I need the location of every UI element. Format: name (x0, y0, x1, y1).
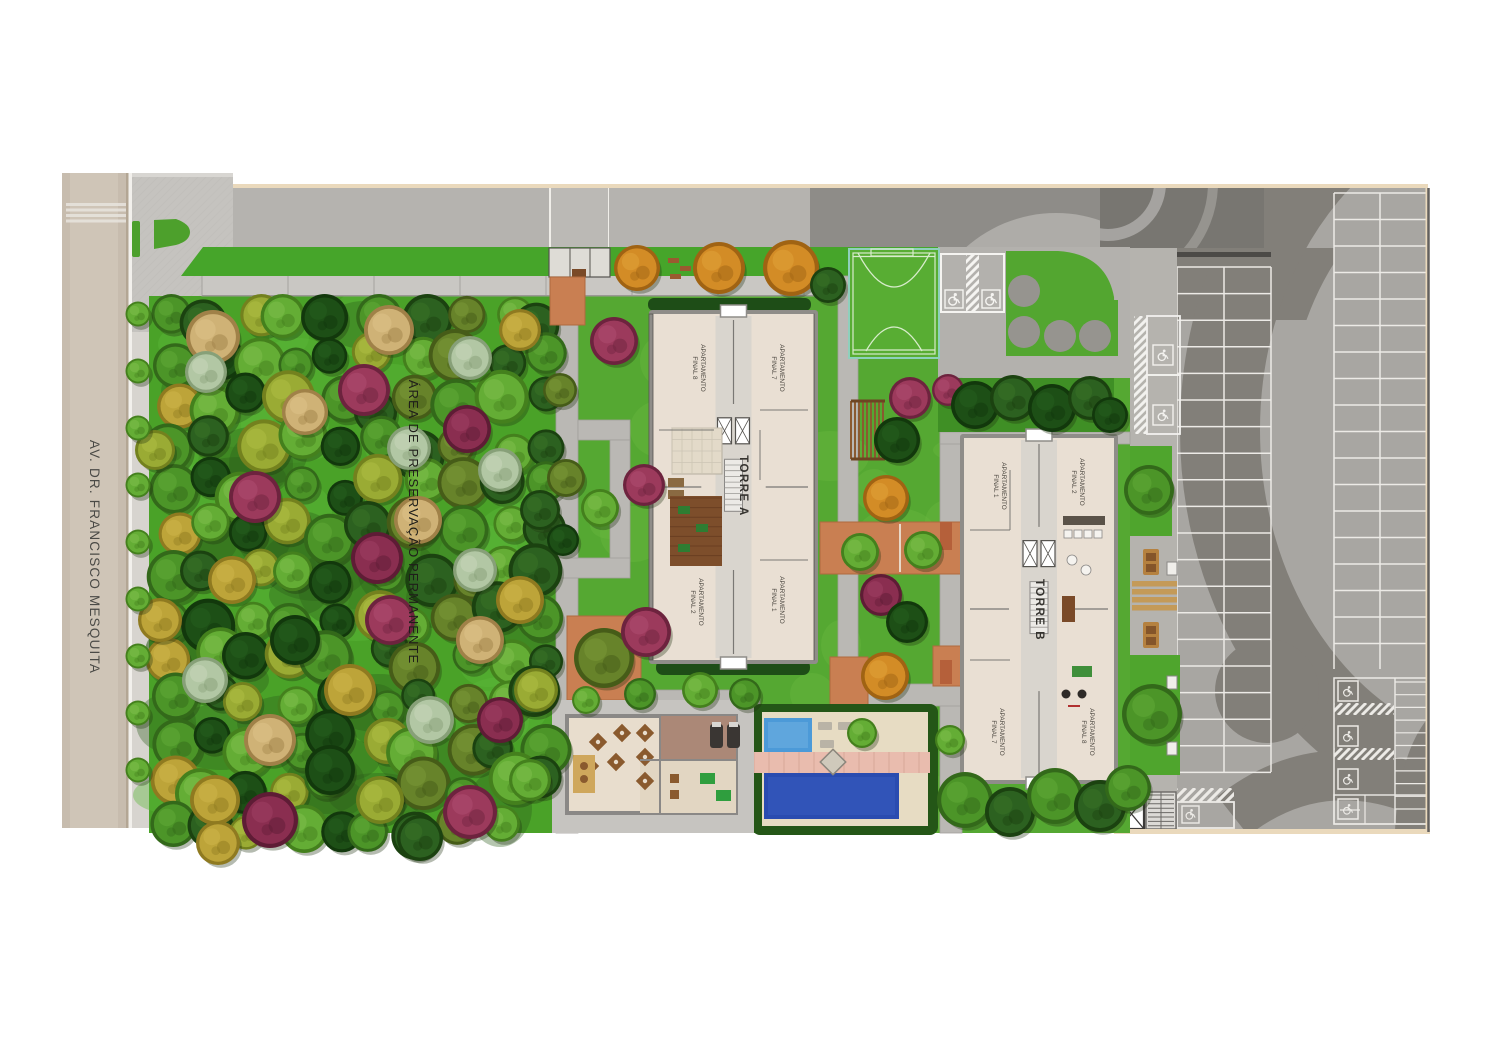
svg-text:ÁREA DE PRESERVAÇÃO PERMANENTE: ÁREA DE PRESERVAÇÃO PERMANENTE (406, 380, 421, 665)
svg-text:AV. DR. FRANCISCO MESQUITA: AV. DR. FRANCISCO MESQUITA (87, 440, 102, 674)
svg-text:TORRE B: TORRE B (1033, 579, 1045, 641)
svg-text:TORRE A: TORRE A (737, 455, 749, 517)
